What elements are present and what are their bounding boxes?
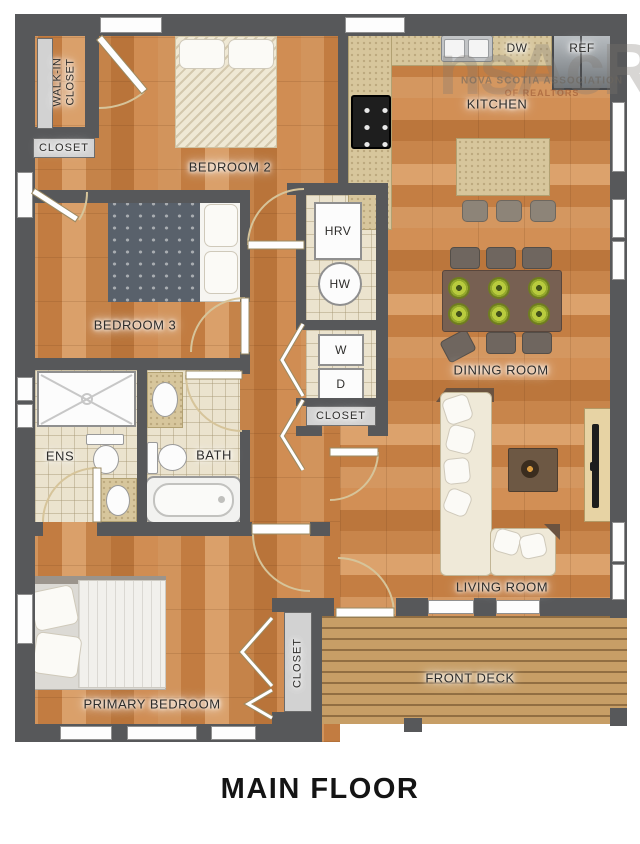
wall (474, 598, 496, 616)
toilet-bowl (93, 445, 119, 474)
room-label-ensuite: ENS (46, 449, 74, 464)
wall (368, 426, 388, 436)
room-label-living-room: LIVING ROOM (456, 580, 548, 595)
wall (540, 598, 612, 616)
table-decor (521, 460, 539, 478)
wall (97, 522, 252, 536)
room-label-hall-closet: CLOSET (316, 410, 366, 422)
room-label-primary-bedroom: PRIMARY BEDROOM (83, 697, 220, 712)
appliance-label-dryer: D (336, 377, 345, 391)
toilet-tank (147, 442, 158, 474)
appliance-label-refrigerator: REF (569, 41, 595, 55)
floor-plan-page: nsAcR NOVA SCOTIA ASSOCIATION OF REALTOR… (0, 0, 640, 844)
dining-chair (486, 247, 516, 269)
dining-chair (522, 332, 552, 354)
wall (240, 358, 250, 374)
room-label-primary-closet: CLOSET (292, 638, 305, 688)
place-setting (488, 277, 510, 299)
bed-duvet (108, 198, 200, 302)
window (17, 404, 33, 428)
toilet-tank (86, 434, 124, 445)
island-stool (496, 200, 522, 222)
room-label-bedroom2: BEDROOM 2 (189, 160, 272, 175)
window (17, 377, 33, 401)
wall (296, 426, 322, 436)
window (211, 726, 256, 740)
window (612, 199, 625, 238)
appliance-label-dishwasher: DW (507, 41, 528, 55)
wall (287, 183, 388, 195)
kitchen-island (456, 138, 550, 196)
deck-post (610, 708, 627, 726)
window (127, 726, 197, 740)
watermark-text: NOVA SCOTIA ASSOCIATION (461, 76, 623, 87)
window (60, 726, 112, 740)
room-label-bath: BATH (196, 448, 232, 463)
shower (37, 371, 136, 427)
plan-title: MAIN FLOOR (0, 773, 640, 806)
dining-chair (486, 332, 516, 354)
wall (376, 183, 388, 433)
wall (272, 598, 312, 612)
room-label-closet: CLOSET (39, 142, 89, 154)
window (345, 17, 405, 33)
window (17, 594, 33, 644)
window (428, 600, 474, 614)
place-setting (488, 303, 510, 325)
wall (310, 522, 330, 536)
bed-pillow (204, 251, 238, 294)
window (100, 17, 162, 33)
island-stool (530, 200, 556, 222)
window (612, 522, 625, 562)
bathtub-drain (218, 496, 225, 503)
place-setting (448, 303, 470, 325)
ensuite-sink (106, 485, 130, 516)
wall (296, 398, 376, 406)
wall (240, 430, 250, 522)
stove-cooktop (351, 95, 391, 149)
dining-chair (522, 247, 552, 269)
window (17, 172, 33, 218)
deck-post (404, 718, 422, 732)
deck-post (610, 598, 627, 618)
bath-sink (152, 382, 178, 417)
room-label-front-deck: FRONT DECK (425, 671, 514, 686)
appliance-label-washer: W (335, 343, 347, 357)
place-setting (528, 303, 550, 325)
place-setting (528, 277, 550, 299)
appliance-label-hot-water: HW (330, 277, 351, 291)
wall (396, 598, 428, 616)
room-label-dining-room: DINING ROOM (453, 363, 548, 378)
toilet-bowl (158, 444, 187, 471)
wall (272, 712, 322, 726)
bed-pillow (204, 204, 238, 247)
room-label-walk-in-closet: WALK-IN CLOSET (51, 58, 76, 107)
wall (35, 358, 250, 370)
appliance-label-hrv: HRV (325, 224, 352, 238)
wall (137, 370, 147, 522)
wall (312, 598, 322, 724)
bed-pillow (228, 39, 274, 69)
window (496, 600, 540, 614)
place-setting (448, 277, 470, 299)
bed-duvet (78, 580, 166, 688)
bed-pillow (31, 631, 82, 679)
dining-chair (450, 247, 480, 269)
bed-pillow (179, 39, 225, 69)
window (612, 564, 625, 600)
wall (338, 36, 348, 186)
wall (296, 320, 376, 330)
wall (35, 190, 250, 203)
wall (240, 196, 250, 302)
wall (35, 522, 43, 536)
room-label-kitchen: KITCHEN (467, 97, 528, 112)
wall (85, 36, 99, 133)
window (612, 241, 625, 280)
throw-pillow (443, 457, 472, 486)
room-label-bedroom3: BEDROOM 3 (94, 318, 177, 333)
tv-mount (590, 462, 597, 471)
island-stool (462, 200, 488, 222)
wall (296, 195, 306, 323)
